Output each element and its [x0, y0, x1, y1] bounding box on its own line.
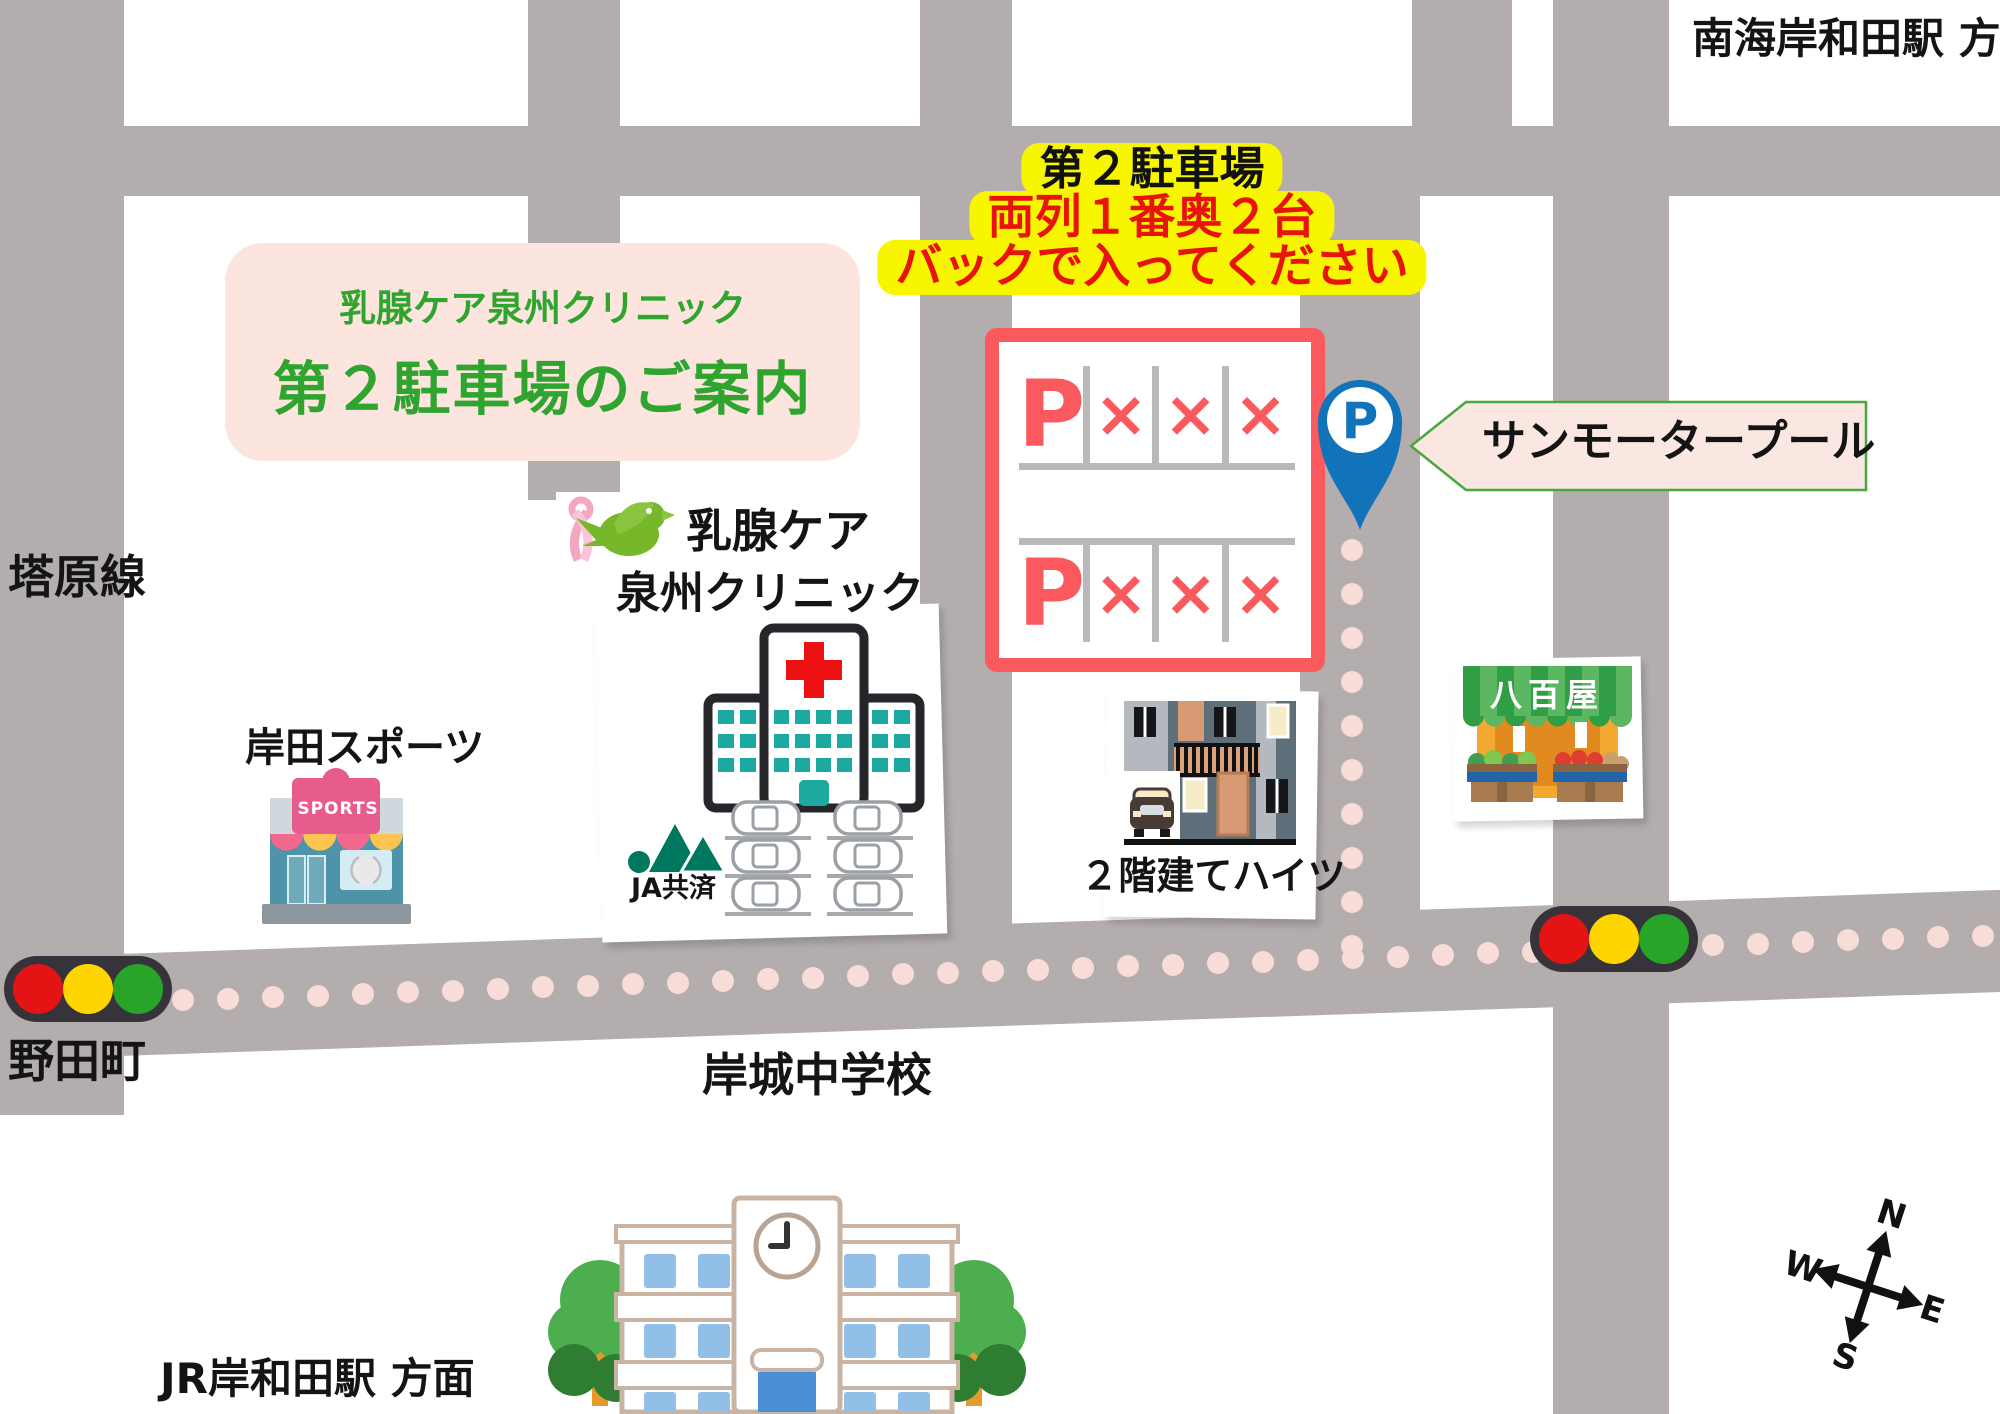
pin-p-letter: P: [1342, 392, 1379, 450]
parking-slot-p: P: [1020, 545, 1083, 642]
parking-slot-x: ×: [1222, 545, 1292, 642]
route-dot: [1072, 957, 1094, 979]
route-dot: [442, 980, 464, 1002]
route-dot: [577, 975, 599, 997]
road-vertical-4-stub: [1412, 0, 1512, 132]
traffic-light-left-icon: [4, 956, 172, 1022]
route-dot: [1927, 926, 1949, 948]
route-dot: [1477, 942, 1499, 964]
route-dot: [1882, 928, 1904, 950]
compass-w: W: [1779, 1243, 1827, 1293]
clinic-name-line2: 泉州クリニック: [616, 570, 924, 618]
route-dot: [1972, 925, 1994, 947]
route-dot: [1117, 955, 1139, 977]
guide-title-main: 第２駐車場のご案内: [272, 342, 812, 426]
route-dot: [1341, 627, 1363, 649]
warning-line2: 両列１番奥２台: [970, 191, 1335, 246]
route-dot: [1341, 935, 1363, 957]
route-dot: [1702, 934, 1724, 956]
signal-green: [113, 964, 163, 1014]
route-dot: [217, 988, 239, 1010]
route-dot: [1387, 946, 1409, 968]
parking-warning-box: 第２駐車場 両列１番奥２台 バックで入ってください: [877, 148, 1426, 295]
parking-pin-icon: P: [1310, 368, 1410, 536]
route-dot: [1747, 933, 1769, 955]
route-dot: [802, 967, 824, 989]
signal-red: [13, 964, 63, 1014]
parking-row-bottom: P × × ×: [1020, 545, 1292, 642]
map-canvas: 南海岸和田駅 方面 塔原線 野田町 JR岸和田駅 方面 岸田スポーツ 岸城中学校…: [0, 0, 2000, 1414]
route-dot: [1162, 954, 1184, 976]
parking-slot-x: ×: [1222, 366, 1292, 464]
hospital-icon: [698, 618, 928, 816]
heights-building-icon: [1118, 693, 1302, 855]
route-dot: [262, 986, 284, 1008]
parked-cars-icon: [723, 798, 915, 918]
compass-icon: N S W E: [1798, 1212, 1938, 1362]
route-dot: [1341, 671, 1363, 693]
vegetable-shop-sign-text: 八百屋: [1490, 678, 1604, 713]
route-dot: [847, 965, 869, 987]
label-noda-cho: 野田町: [8, 1036, 146, 1087]
clinic-logo-bird-icon: [556, 492, 678, 570]
route-dot: [1341, 759, 1363, 781]
signal-red: [1539, 914, 1589, 964]
parking-row-top: P × × ×: [1020, 366, 1292, 464]
warning-line1: 第２駐車場: [1021, 143, 1282, 196]
compass-s: S: [1827, 1335, 1863, 1381]
route-dot: [172, 989, 194, 1011]
route-dot: [622, 973, 644, 995]
label-tonohara-line: 塔原線: [8, 552, 146, 603]
compass-e: E: [1915, 1287, 1949, 1332]
route-dot: [667, 972, 689, 994]
route-dot: [1792, 931, 1814, 953]
guide-title-box: 乳腺ケア泉州クリニック 第２駐車場のご案内: [225, 243, 860, 461]
parking-slot-x: ×: [1083, 545, 1152, 642]
sports-sign-text: SPORTS: [297, 800, 378, 819]
route-dot: [712, 970, 734, 992]
route-dot: [1341, 803, 1363, 825]
route-dot: [1207, 952, 1229, 974]
signal-yellow: [1589, 914, 1639, 964]
parking-slot-p: P: [1020, 366, 1083, 464]
signal-green: [1639, 914, 1689, 964]
parking-slot-x: ×: [1152, 545, 1222, 642]
label-sports-shop: 岸田スポーツ: [245, 726, 484, 770]
sports-shop-icon: [258, 770, 415, 928]
traffic-light-right-icon: [1530, 906, 1698, 972]
parking-aisle-line-top: [1019, 463, 1295, 470]
route-dot: [1027, 959, 1049, 981]
guide-title-clinic-name: 乳腺ケア泉州クリニック: [339, 278, 746, 332]
route-dot: [397, 981, 419, 1003]
route-dot: [1297, 949, 1319, 971]
route-dot: [1837, 929, 1859, 951]
route-dot: [1341, 715, 1363, 737]
label-heights: ２階建てハイツ: [1080, 856, 1345, 898]
route-dot: [307, 985, 329, 1007]
signal-yellow: [63, 964, 113, 1014]
ja-kyosai-label: JA共済: [631, 874, 716, 904]
route-dot: [982, 960, 1004, 982]
route-dot: [892, 963, 914, 985]
warning-line3: バックで入ってください: [877, 240, 1426, 295]
ja-kyosai-logo-icon: [627, 808, 727, 876]
label-school: 岸城中学校: [702, 1050, 932, 1101]
route-dot: [352, 983, 374, 1005]
school-building-icon: [562, 1122, 1012, 1414]
label-jr-direction: JR岸和田駅 方面: [160, 1356, 475, 1402]
route-dot: [487, 978, 509, 1000]
compass-n: N: [1872, 1191, 1911, 1238]
route-dot: [532, 976, 554, 998]
parking-slot-x: ×: [1152, 366, 1222, 464]
parking-slot-x: ×: [1083, 366, 1152, 464]
label-nankai-direction: 南海岸和田駅 方面: [1692, 16, 2000, 62]
route-dot: [1341, 539, 1363, 561]
route-dot: [937, 962, 959, 984]
route-dot: [757, 968, 779, 990]
route-dot: [1252, 951, 1274, 973]
route-dot: [1432, 944, 1454, 966]
route-dot: [1341, 583, 1363, 605]
clinic-name-line1: 乳腺ケア: [686, 506, 870, 557]
motor-pool-label: サンモータープール: [1482, 418, 1875, 466]
